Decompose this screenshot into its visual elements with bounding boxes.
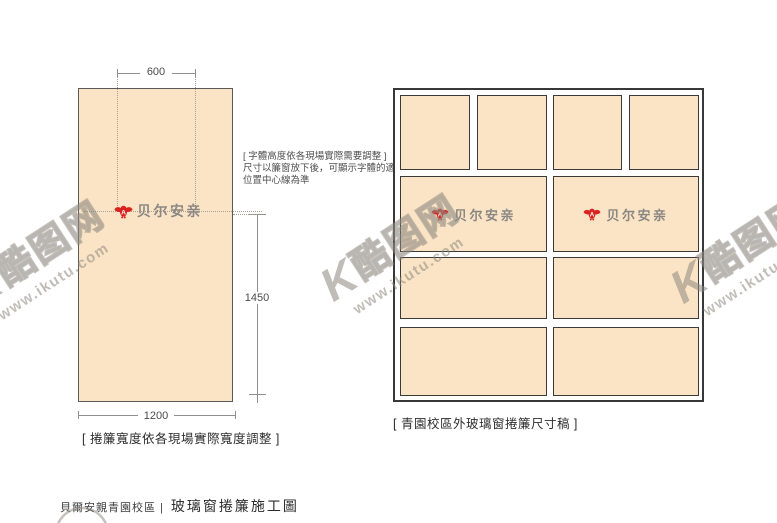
note-line-1: [ 字體高度依各現場實際需要調整 ]: [243, 151, 393, 163]
brand-logo-text: 贝尔安亲: [137, 201, 203, 221]
left-drawing-caption: [ 捲簾寬度依各現場實際寬度調整 ]: [82, 428, 280, 447]
panel-cell: [400, 95, 470, 170]
dim-1450-extension: [233, 214, 257, 215]
dim-1200-label: 1200: [138, 410, 174, 422]
font-height-note: [ 字體高度依各現場實際需要調整 ] 尺寸以簾窗放下後，可顯示字體的適當 位置中…: [243, 151, 393, 187]
dim-600-label: 600: [140, 66, 172, 78]
witness-line-right: [195, 77, 196, 210]
dim-1450-line: [257, 214, 258, 403]
watermark-brand: 酷图网: [695, 191, 777, 287]
drawing-canvas: A 600 贝尔安亲 1450 1200 [ 捲簾寬度依各現場實際寬度調整 ] …: [0, 0, 777, 523]
dim-1200-tick-right: [235, 411, 236, 419]
drawing-title-prefix: 貝爾安親青園校區 |: [60, 502, 164, 514]
note-line-2: 尺寸以簾窗放下後，可顯示字體的適當: [243, 163, 393, 175]
dim-1200-line-right: [174, 415, 235, 416]
brand-logo-text: 贝尔安亲: [454, 205, 516, 224]
panel-cell: [400, 257, 547, 319]
panel-cell: [553, 257, 699, 319]
dim-1200-tick-left: [78, 411, 79, 419]
dim-1450-label: 1450: [239, 292, 275, 304]
panel-cell: [553, 327, 699, 396]
panel-cell: [400, 327, 547, 396]
note-line-3: 位置中心線為準: [243, 175, 393, 187]
brand-logo-left: 贝尔安亲: [114, 201, 203, 221]
bell-mascot-icon: [114, 204, 133, 219]
panel-logo-cell: 贝尔安亲: [553, 176, 699, 252]
kutu-k-icon: K: [0, 258, 10, 315]
window-panel-drawing: 贝尔安亲 贝尔安亲: [393, 88, 704, 402]
dim-600-tick-right: [195, 69, 196, 77]
dim-1200-line-left: [78, 415, 138, 416]
curtain-rectangle: [78, 88, 233, 402]
dim-600-tick-left: [117, 69, 118, 77]
right-drawing-caption: [ 青園校區外玻璃窗捲簾尺寸稿 ]: [393, 413, 578, 432]
panel-cell: [629, 95, 699, 170]
bell-mascot-icon: [431, 207, 449, 221]
panel-cell: [553, 95, 622, 170]
drawing-title: 玻璃窗捲簾施工圖: [171, 498, 299, 514]
witness-line-left: [117, 77, 118, 210]
brand-logo-text: 贝尔安亲: [606, 205, 668, 224]
panel-logo-cell: 贝尔安亲: [400, 176, 547, 252]
drawing-title-block: 貝爾安親青園校區 |玻璃窗捲簾施工圖: [60, 496, 299, 516]
bell-mascot-icon: [583, 207, 601, 221]
dim-600-line-right: [170, 73, 195, 74]
panel-cell: [477, 95, 547, 170]
dim-1450-tick-bottom: [249, 394, 266, 395]
kutu-k-icon: K: [312, 252, 365, 309]
